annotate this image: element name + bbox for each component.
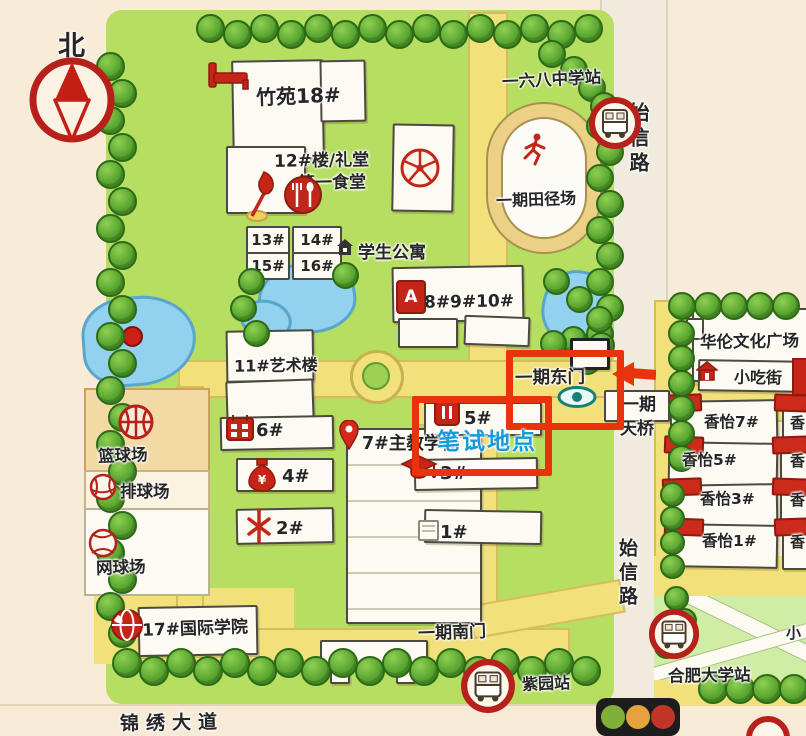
tree-icon bbox=[668, 320, 695, 347]
campus-map: 13# 14# 15# 16# bbox=[0, 0, 806, 736]
plaza-label: 华伦文化广场 bbox=[700, 327, 799, 353]
intl17-label: 17#国际学院 bbox=[142, 612, 249, 641]
traffic-light-red bbox=[651, 705, 675, 729]
tree-icon bbox=[96, 160, 125, 189]
tree-icon bbox=[96, 376, 125, 405]
calendar-icon bbox=[226, 414, 254, 442]
b4-label: 4# bbox=[282, 466, 310, 487]
tree-icon bbox=[250, 14, 279, 43]
tree-icon bbox=[355, 656, 385, 686]
written-test-label: 笔试地点 bbox=[437, 422, 537, 456]
tree-icon bbox=[566, 286, 593, 313]
building-8910-b bbox=[398, 318, 458, 348]
volleyball-icon bbox=[88, 472, 118, 502]
tree-icon bbox=[439, 20, 468, 49]
dorm-chip-13: 13# bbox=[246, 226, 290, 254]
tree-icon bbox=[166, 648, 196, 678]
xiangyi-partial-label: 香 bbox=[790, 450, 805, 471]
xiangyi-partial-label: 香 bbox=[790, 412, 805, 433]
tree-icon bbox=[108, 187, 137, 216]
tree-icon bbox=[112, 648, 142, 678]
zhuyuan-label: 竹苑18# bbox=[256, 79, 342, 111]
badge-a-letter: A bbox=[404, 287, 417, 307]
bus-stop-partial-icon bbox=[744, 714, 792, 736]
tree-icon bbox=[660, 554, 685, 579]
dorm-13-label: 13# bbox=[251, 231, 284, 249]
location-pin-icon bbox=[338, 420, 360, 450]
snack-street-badge bbox=[792, 358, 806, 396]
xiangyi-partial-label: 香 bbox=[790, 531, 805, 552]
traffic-light-green bbox=[601, 705, 625, 729]
tree-icon bbox=[274, 648, 304, 678]
tree-icon bbox=[230, 295, 257, 322]
tree-icon bbox=[543, 268, 570, 295]
tree-icon bbox=[331, 20, 360, 49]
dorm-14-label: 14# bbox=[300, 231, 333, 249]
tree-icon bbox=[668, 370, 695, 397]
tree-icon bbox=[96, 214, 125, 243]
tree-icon bbox=[108, 349, 137, 378]
shixin-road-label-bottom: 始信路 bbox=[614, 538, 641, 610]
runner-icon bbox=[520, 132, 550, 168]
tree-icon bbox=[694, 292, 722, 320]
tree-icon bbox=[574, 14, 603, 43]
tree-icon bbox=[382, 648, 412, 678]
tree-icon bbox=[720, 292, 748, 320]
house-icon bbox=[696, 360, 718, 382]
dining-fan-icon bbox=[398, 146, 442, 190]
tree-icon bbox=[328, 648, 358, 678]
athletics-track bbox=[486, 102, 602, 254]
tree-icon bbox=[409, 656, 439, 686]
tree-icon bbox=[660, 530, 685, 555]
building-8910-c bbox=[463, 315, 530, 347]
tree-icon bbox=[493, 20, 522, 49]
dorm-chip-14: 14# bbox=[292, 226, 342, 254]
badge-a-icon: A bbox=[396, 280, 426, 314]
dorm-label: 学生公寓 bbox=[358, 238, 426, 263]
tree-icon bbox=[586, 306, 613, 333]
tennis-ball-icon bbox=[86, 526, 120, 560]
south-gate-label: 一期南门 bbox=[418, 617, 487, 644]
tree-icon bbox=[96, 268, 125, 297]
basketball-icon bbox=[116, 402, 156, 442]
tree-icon bbox=[277, 20, 306, 49]
track-label: 一期田径场 bbox=[496, 185, 577, 212]
b1-label: 1# bbox=[440, 522, 468, 543]
arrow-icon bbox=[612, 360, 656, 388]
tree-icon bbox=[243, 320, 270, 347]
tree-icon bbox=[596, 242, 624, 270]
tree-icon bbox=[668, 395, 695, 422]
bed-icon bbox=[206, 60, 252, 92]
b2-label: 2# bbox=[276, 518, 304, 539]
roundabout-center bbox=[362, 362, 390, 390]
tree-icon bbox=[660, 482, 685, 507]
tree-icon bbox=[247, 656, 277, 686]
basketball-label: 篮球场 bbox=[98, 441, 148, 467]
tree-icon bbox=[668, 292, 696, 320]
bridge-label-line1: 一期 bbox=[622, 390, 656, 415]
tree-icon bbox=[779, 674, 806, 704]
volleyball-label: 排球场 bbox=[120, 478, 170, 502]
east-gate-label: 一期东门 bbox=[515, 363, 585, 389]
tree-icon bbox=[412, 14, 441, 43]
tree-icon bbox=[332, 262, 359, 289]
tree-icon bbox=[752, 674, 782, 704]
bridge-label-line2: 天桥 bbox=[620, 414, 654, 439]
tree-icon bbox=[220, 648, 250, 678]
xiangyi7-label: 香怡7# bbox=[704, 410, 759, 432]
bus-stop-icon bbox=[460, 658, 516, 714]
tree-icon bbox=[238, 268, 265, 295]
globe-icon bbox=[108, 606, 146, 644]
tree-icon bbox=[571, 656, 601, 686]
tree-icon bbox=[668, 345, 695, 372]
jinxiu-avenue-label: 锦绣大道 bbox=[120, 707, 224, 736]
torch-icon bbox=[244, 168, 280, 226]
tree-icon bbox=[668, 420, 695, 447]
pond-red-ball bbox=[122, 326, 143, 347]
tree-icon bbox=[358, 14, 387, 43]
xiangyi5-label: 香怡5# bbox=[682, 448, 737, 470]
b6-label: 6# bbox=[256, 420, 284, 441]
tree-icon bbox=[772, 292, 800, 320]
dorm-16-label: 16# bbox=[300, 257, 333, 275]
tree-icon bbox=[223, 20, 252, 49]
tree-icon bbox=[746, 292, 774, 320]
tree-icon bbox=[586, 164, 614, 192]
ziyuan-station-label: 紫园站 bbox=[522, 669, 571, 695]
tree-icon bbox=[586, 216, 614, 244]
tree-icon bbox=[301, 656, 331, 686]
tree-icon bbox=[385, 20, 414, 49]
windmill-icon bbox=[244, 506, 274, 546]
badge-lines bbox=[422, 525, 435, 527]
roof-icon bbox=[774, 393, 806, 412]
b8910-label: 8#9#10# bbox=[424, 291, 514, 313]
tree-icon bbox=[193, 656, 223, 686]
bus-stop-icon bbox=[648, 608, 700, 660]
tree-icon bbox=[108, 241, 137, 270]
partial-label: 小 bbox=[786, 622, 801, 643]
tree-icon bbox=[520, 14, 549, 43]
traffic-light-yellow bbox=[626, 705, 650, 729]
bus-stop-icon bbox=[588, 96, 642, 150]
compass bbox=[26, 54, 118, 146]
building1-badge-icon bbox=[418, 520, 439, 541]
art11-label: 11#艺术楼 bbox=[234, 351, 318, 376]
hefei-univ-station-label: 合肥大学站 bbox=[668, 661, 751, 686]
tree-icon bbox=[96, 322, 125, 351]
tree-icon bbox=[139, 656, 169, 686]
canteen-icon bbox=[282, 174, 324, 216]
tree-icon bbox=[466, 14, 495, 43]
dorm-house-icon bbox=[336, 238, 354, 256]
tree-icon bbox=[304, 14, 333, 43]
xiangyi3-label: 香怡3# bbox=[700, 487, 755, 509]
svg-text:¥: ¥ bbox=[258, 473, 267, 487]
compass-rose-icon bbox=[26, 54, 118, 146]
tree-icon bbox=[196, 14, 225, 43]
badge-lines bbox=[422, 530, 435, 532]
xiangyi1-label: 香怡1# bbox=[702, 529, 757, 551]
snack-street-label: 小吃街 bbox=[734, 364, 782, 389]
tree-icon bbox=[660, 506, 685, 531]
xiangyi-partial-label: 香 bbox=[790, 489, 805, 510]
money-bag-icon: ¥ bbox=[246, 456, 278, 492]
traffic-light-icon bbox=[596, 698, 680, 736]
tree-icon bbox=[108, 295, 137, 324]
tree-icon bbox=[596, 190, 624, 218]
